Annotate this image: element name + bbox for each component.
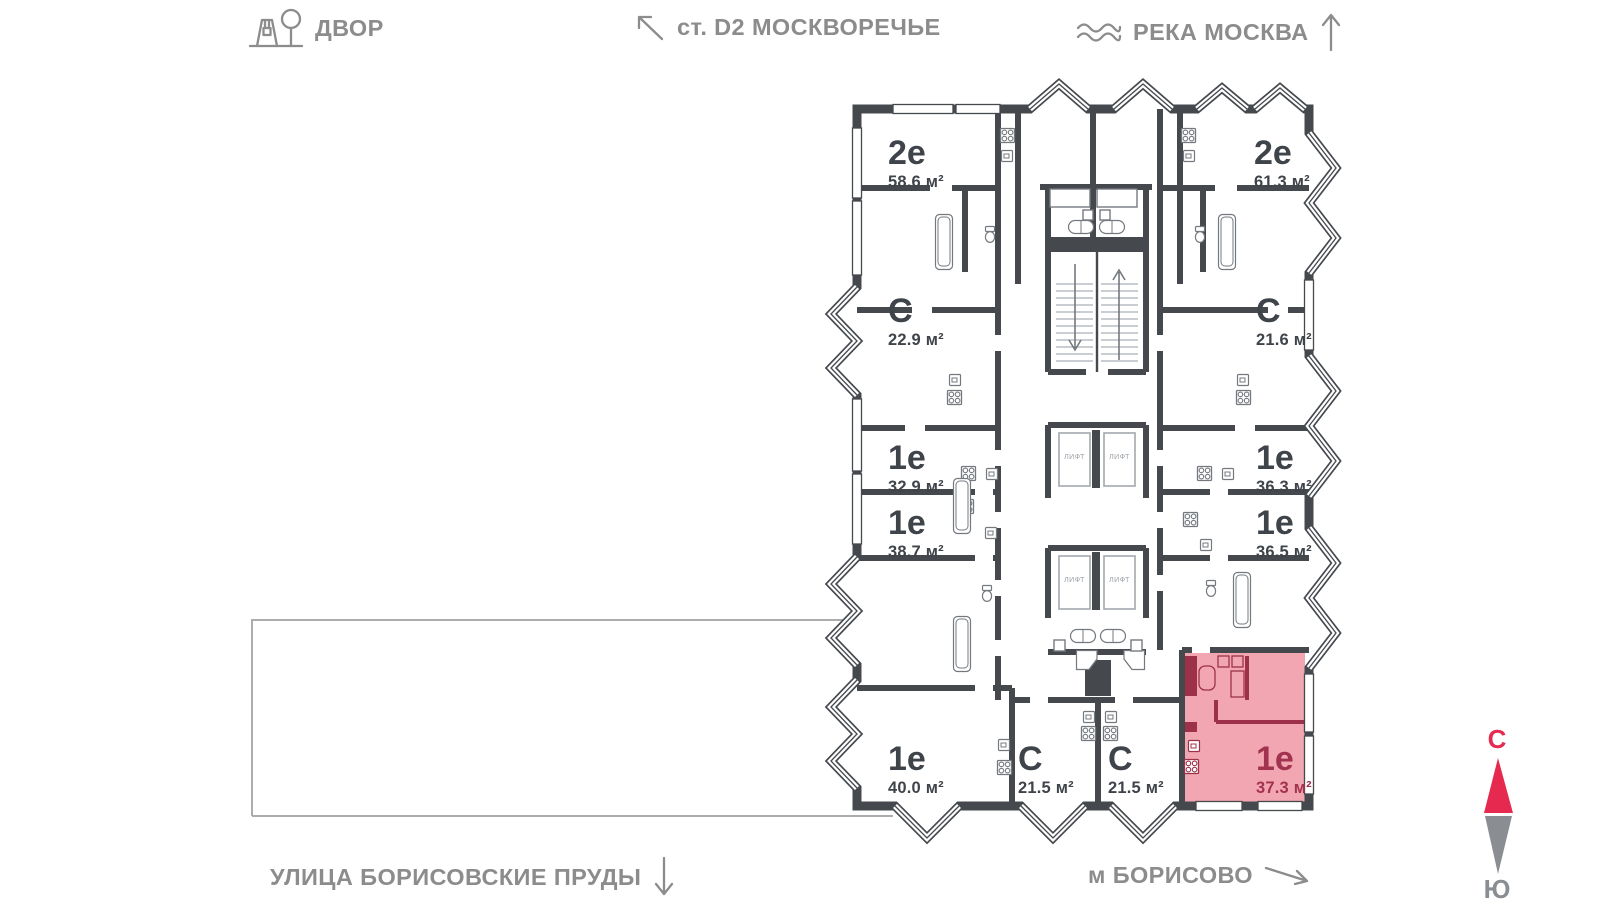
apartment-area: 21.6 м² — [1256, 332, 1312, 349]
apartment-s-22-9[interactable]: С 22.9 м² — [888, 294, 944, 349]
courtyard-label-group: ДВОР — [248, 6, 384, 50]
apartment-area: 21.5 м² — [1108, 780, 1164, 797]
apartment-type: С — [1018, 742, 1074, 776]
apartment-area: 37.3 м² — [1256, 780, 1312, 797]
apartment-type: 1е — [1256, 441, 1312, 475]
apartment-area: 32.9 м² — [888, 479, 944, 496]
floor-plan-svg — [0, 0, 1600, 920]
compass-needle-icon — [1481, 756, 1517, 876]
apartment-type: 1е — [888, 506, 944, 540]
apartment-s-21-5-b[interactable]: С 21.5 м² — [1108, 742, 1164, 797]
arrow-down-right-icon — [1264, 863, 1312, 889]
apartment-1e-37-3-highlighted[interactable]: 1е 37.3 м² — [1256, 742, 1312, 797]
metro-label: м БОРИСОВО — [1088, 862, 1253, 889]
apartment-s-21-5-a[interactable]: С 21.5 м² — [1018, 742, 1074, 797]
apartment-2e-58-6[interactable]: 2е 58.6 м² — [888, 136, 944, 191]
apartment-1e-36-5[interactable]: 1е 36.5 м² — [1256, 506, 1312, 561]
apartment-1e-32-9[interactable]: 1е 32.9 м² — [888, 441, 944, 496]
arrow-up-icon — [1320, 12, 1342, 52]
apartment-type: 2е — [888, 136, 944, 170]
courtyard-label: ДВОР — [315, 15, 384, 42]
elevator-label: ЛИФТ — [1104, 577, 1135, 584]
apartment-area: 40.0 м² — [888, 780, 944, 797]
apartment-area: 36.5 м² — [1256, 544, 1312, 561]
apartment-type: С — [1256, 294, 1312, 328]
elevator-label: ЛИФТ — [1059, 577, 1090, 584]
arrow-up-left-icon — [634, 12, 666, 42]
elevator-label: ЛИФТ — [1104, 454, 1135, 461]
apartment-area: 22.9 м² — [888, 332, 944, 349]
playground-icon — [248, 6, 304, 50]
apartment-type: 1е — [1256, 506, 1312, 540]
apartment-s-21-6[interactable]: С 21.6 м² — [1256, 294, 1312, 349]
apartment-area: 36.3 м² — [1256, 479, 1312, 496]
compass-south-label: Ю — [1479, 874, 1515, 905]
apartment-1e-40-0[interactable]: 1е 40.0 м² — [888, 742, 944, 797]
apartment-type: 1е — [888, 441, 944, 475]
apartment-type: 1е — [1256, 742, 1312, 776]
apartment-area: 61.3 м² — [1254, 174, 1310, 191]
station-label-group: ст. D2 МОСКВОРЕЧЬЕ — [634, 12, 941, 42]
apartment-2e-61-3[interactable]: 2е 61.3 м² — [1254, 136, 1310, 191]
floor-plan-page: { "map_labels": { "courtyard": "ДВОР", "… — [0, 0, 1600, 920]
river-label-group: РЕКА МОСКВА — [1076, 12, 1342, 52]
apartment-1e-36-3[interactable]: 1е 36.3 м² — [1256, 441, 1312, 496]
apartment-1e-38-7[interactable]: 1е 38.7 м² — [888, 506, 944, 561]
apartment-area: 21.5 м² — [1018, 780, 1074, 797]
apartment-type: С — [888, 294, 944, 328]
arrow-down-icon — [652, 856, 676, 898]
station-label: ст. D2 МОСКВОРЕЧЬЕ — [677, 14, 941, 41]
elevator-label: ЛИФТ — [1059, 454, 1090, 461]
street-label: УЛИЦА БОРИСОВСКИЕ ПРУДЫ — [270, 864, 641, 891]
compass-north-label: С — [1479, 724, 1515, 755]
apartment-type: С — [1108, 742, 1164, 776]
apartment-area: 38.7 м² — [888, 544, 944, 561]
apartment-type: 2е — [1254, 136, 1310, 170]
apartment-type: 1е — [888, 742, 944, 776]
plot-boundary — [252, 620, 893, 816]
metro-label-group: м БОРИСОВО — [1088, 862, 1312, 889]
river-label: РЕКА МОСКВА — [1133, 19, 1309, 46]
river-waves-icon — [1076, 19, 1122, 45]
apartment-area: 58.6 м² — [888, 174, 944, 191]
street-label-group: УЛИЦА БОРИСОВСКИЕ ПРУДЫ — [270, 856, 676, 898]
